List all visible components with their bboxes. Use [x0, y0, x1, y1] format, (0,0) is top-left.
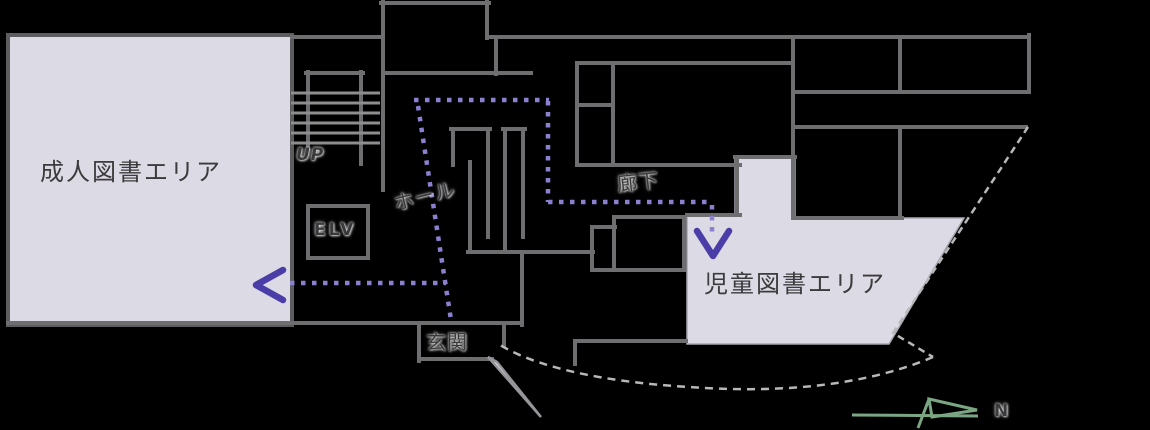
entrance-door	[488, 357, 541, 417]
children-books-area	[687, 157, 964, 344]
staircase	[291, 93, 380, 143]
corridor-label: 廊下	[616, 170, 660, 194]
stairs-up-label: UP	[296, 147, 324, 164]
floor-plan-canvas: 成人図書エリア 児童図書エリア ホール 廊下 玄関 ELV UP N	[0, 0, 1150, 430]
compass-north-icon	[852, 399, 978, 428]
elevator-label: ELV	[314, 222, 356, 239]
children-area-label: 児童図書エリア	[704, 272, 886, 296]
compass-north-label: N	[994, 403, 1009, 420]
canopy-arc	[497, 343, 933, 389]
entrance-label: 玄関	[426, 332, 468, 352]
floor-plan-drawing	[0, 0, 1150, 430]
adult-area-label: 成人図書エリア	[40, 160, 222, 184]
